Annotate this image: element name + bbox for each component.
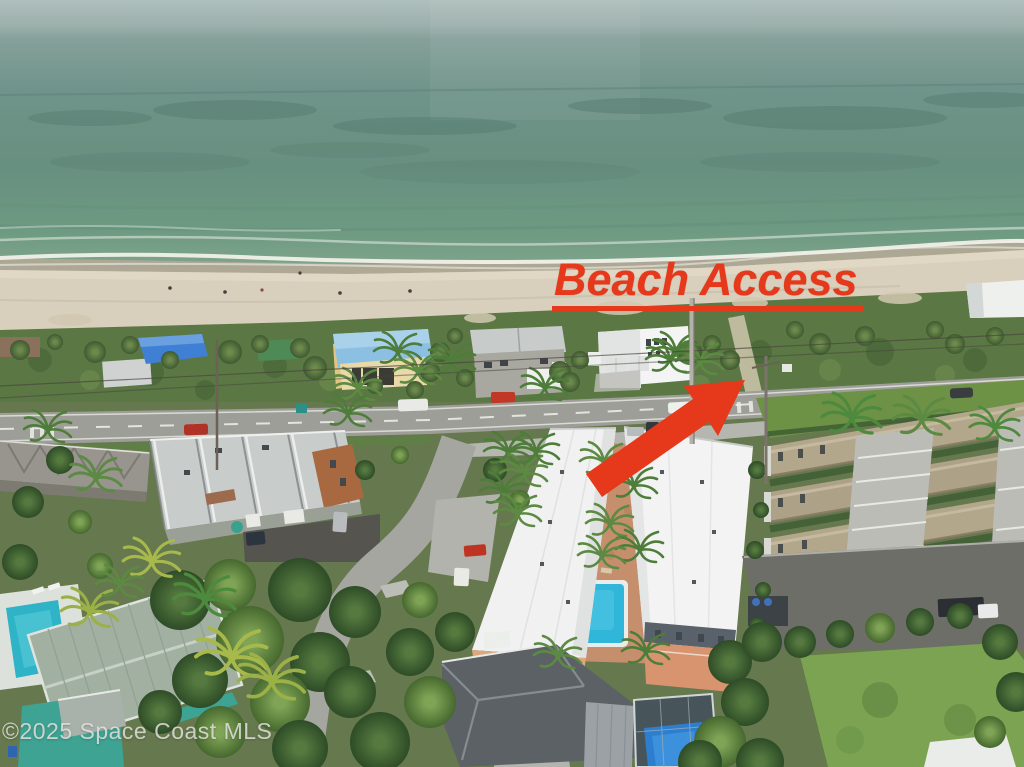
- dark-car: [950, 387, 973, 398]
- gray-shed: [102, 358, 152, 387]
- ocean: [0, 0, 1024, 282]
- rear-lawn: [800, 642, 1024, 767]
- silver-car-2: [627, 427, 644, 436]
- red-car: [184, 424, 208, 436]
- townhouse-complex: [150, 431, 380, 562]
- white-pickup: [398, 398, 428, 411]
- aerial-photo-scene: [0, 0, 1024, 767]
- white-truck: [978, 603, 999, 618]
- silver-car: [332, 512, 347, 533]
- white-pickup: [454, 568, 470, 587]
- mls-aerial-photo: Beach Access ©2025 Space Coast MLS: [0, 0, 1024, 767]
- garage-door: [245, 513, 260, 528]
- red-pickup: [491, 392, 515, 403]
- red-car: [464, 544, 487, 557]
- blue-bin: [8, 746, 17, 757]
- gray-two-story-house: [470, 326, 566, 403]
- beach-access-sign: [782, 364, 792, 372]
- dark-car: [245, 531, 265, 546]
- teal-bin: [296, 404, 307, 413]
- blue-roof-yellow-house: [333, 329, 433, 390]
- garage-door: [283, 509, 304, 524]
- teal-umbrella: [231, 521, 243, 533]
- white-shed: [483, 631, 510, 649]
